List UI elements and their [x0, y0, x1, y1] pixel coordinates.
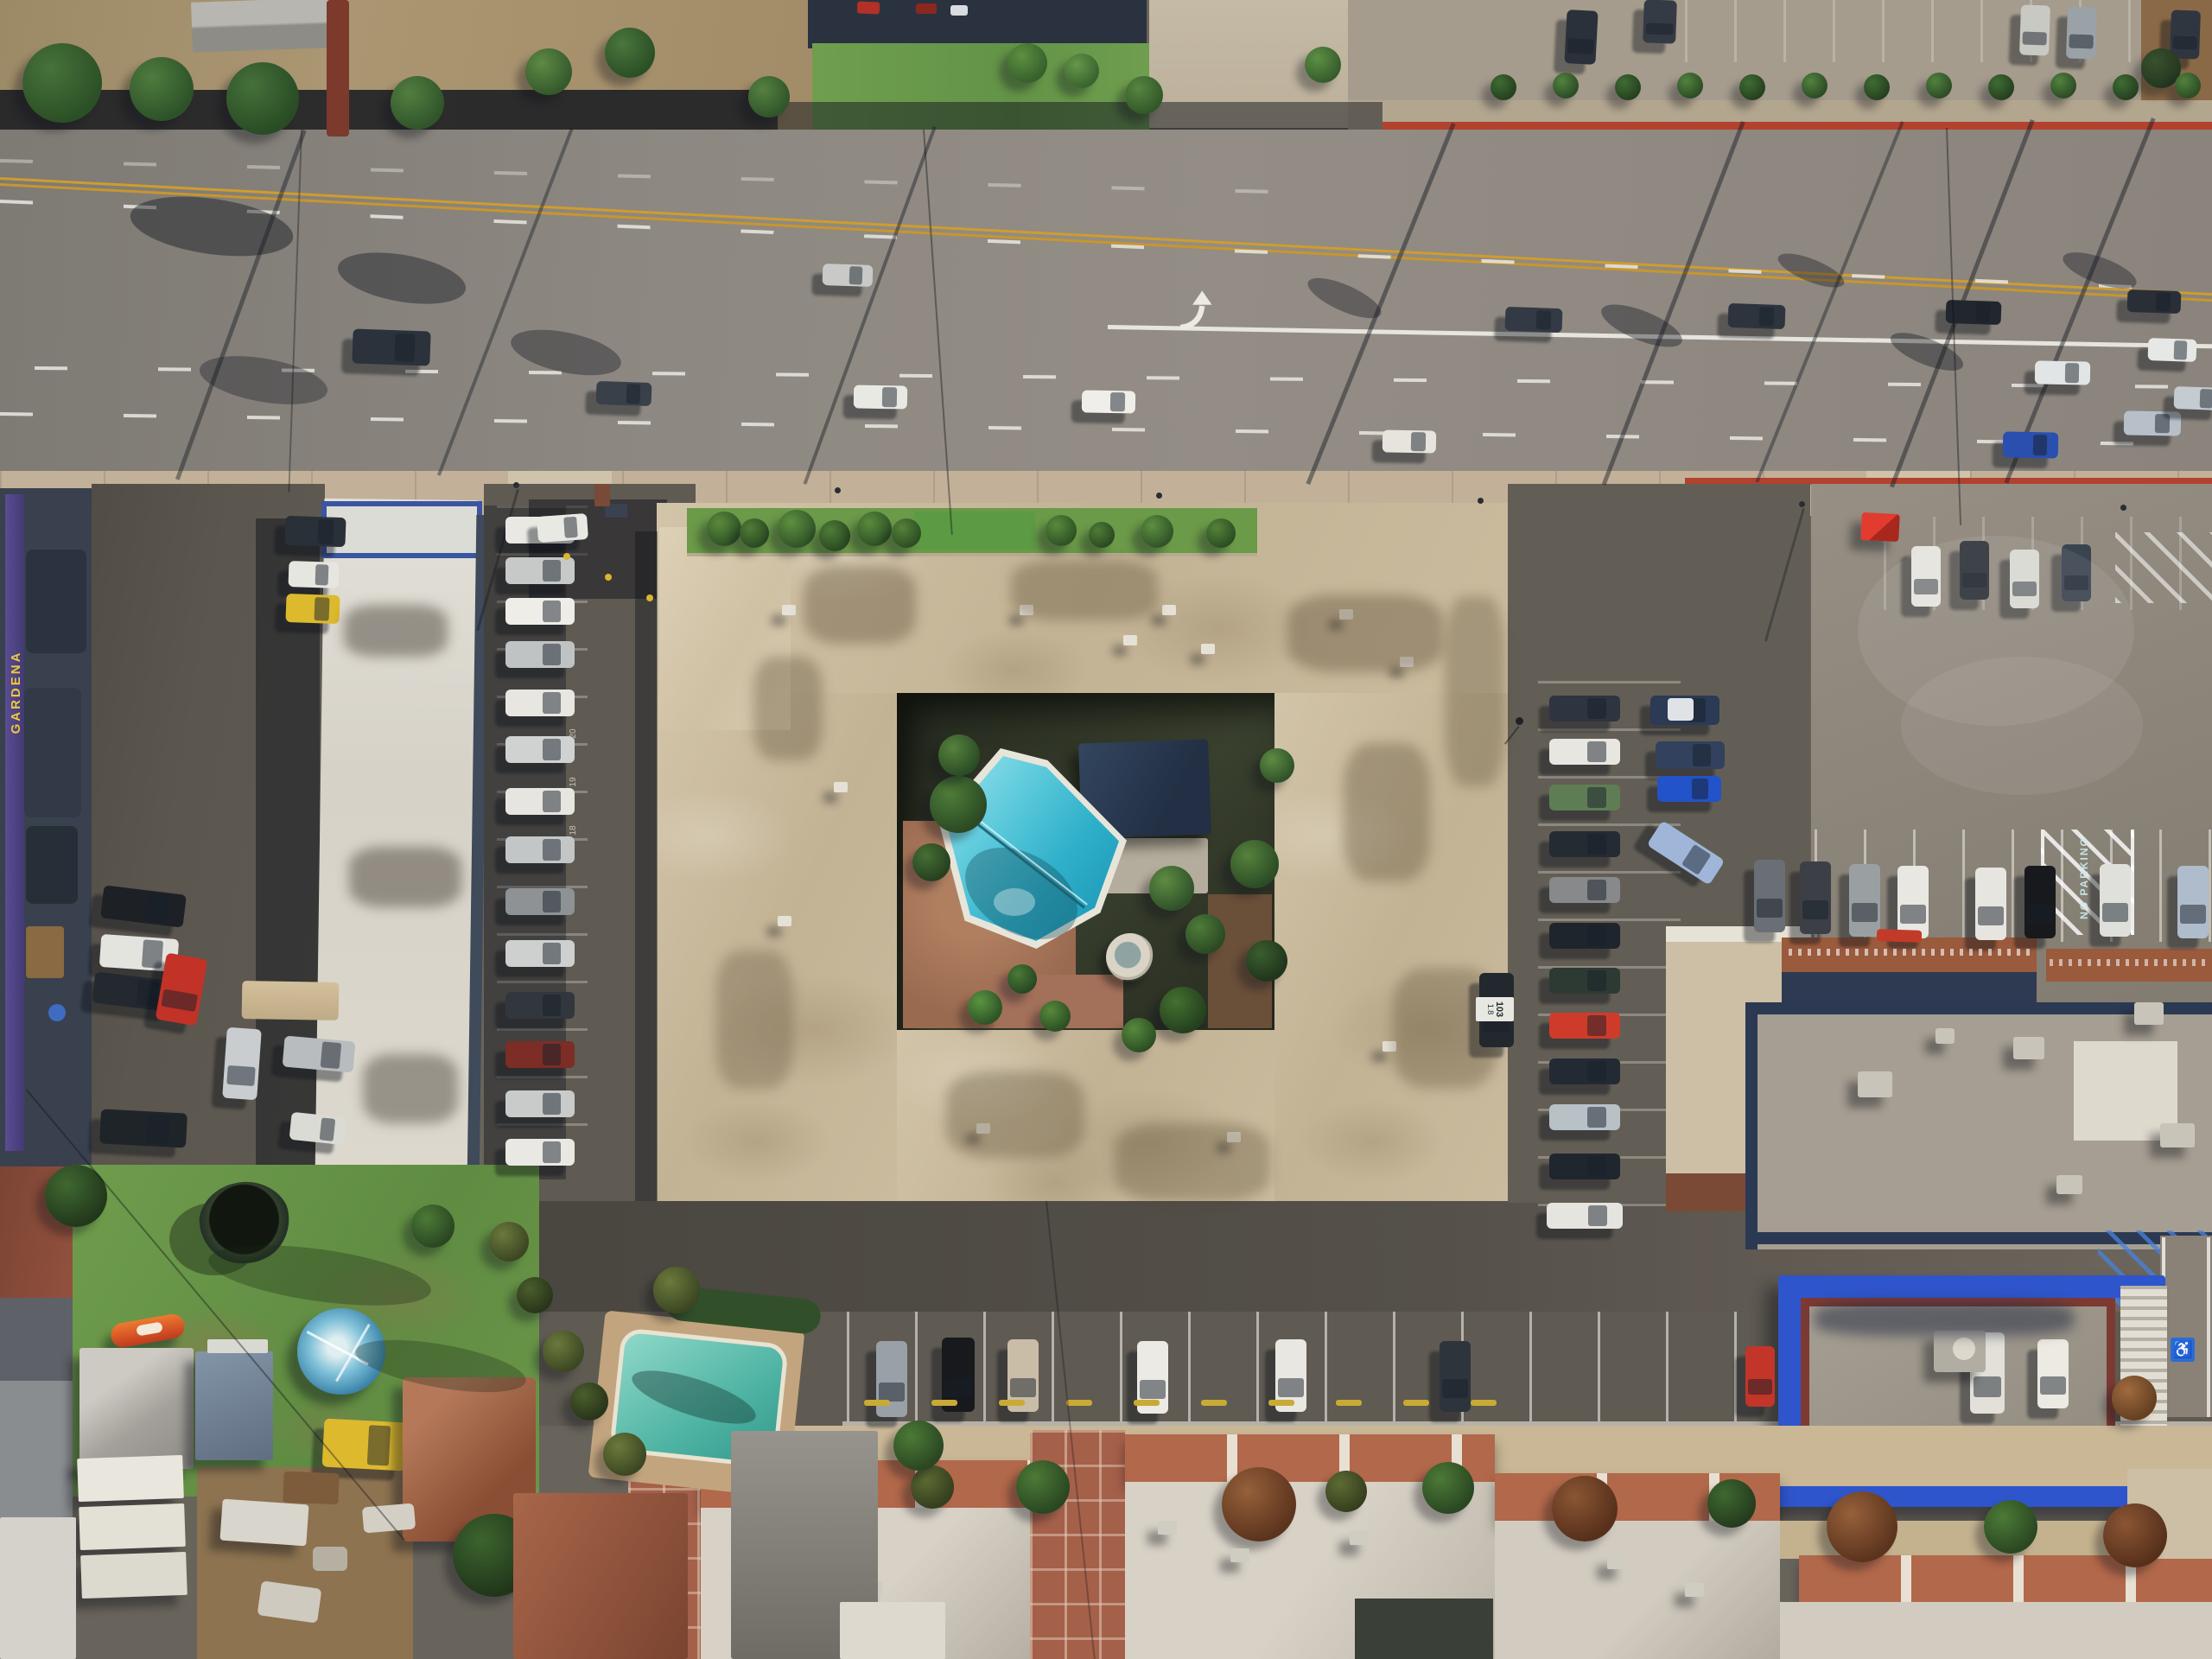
hedge-diag: [603, 1433, 646, 1476]
parked-car: [288, 561, 339, 588]
parked-car: [1549, 831, 1620, 857]
tree: [130, 57, 194, 121]
hedge: [1677, 73, 1703, 99]
blue-barrel: [48, 1004, 66, 1021]
street-tree-rust: [1827, 1491, 1897, 1562]
roof-garden-tree: [857, 512, 892, 546]
parked-car: [2024, 866, 2056, 938]
parked-car: [2066, 6, 2097, 59]
parked-car: [505, 992, 575, 1019]
parked-car: [100, 885, 187, 927]
parking-bumper: [999, 1400, 1025, 1406]
parking-bumper: [1066, 1400, 1092, 1406]
strip-roof-ac: [1230, 1548, 1249, 1562]
hedge: [1926, 73, 1952, 99]
road-car: [823, 264, 874, 287]
hvac-unit: [782, 605, 796, 615]
palm-tree: [1305, 47, 1341, 83]
bollard: [646, 594, 653, 601]
parked-car: [505, 690, 575, 716]
road-car: [1505, 307, 1563, 333]
hedge-diag: [517, 1277, 553, 1313]
hvac-unit: [1201, 644, 1215, 654]
tree-shadow: [126, 188, 296, 265]
street-tree-rust: [2103, 1503, 2167, 1567]
white-roof-cab: [1668, 698, 1694, 721]
power-line: [1946, 128, 1961, 525]
roof-garden-tree: [707, 512, 741, 546]
roof-stain: [1445, 596, 1505, 786]
pedestr-shadow: [1504, 726, 1520, 745]
hedge: [1491, 74, 1516, 100]
parking-bumper: [931, 1400, 957, 1406]
parked-car: [1549, 877, 1620, 903]
street-tree-rust: [1222, 1467, 1296, 1541]
courtyard-palm: [1185, 914, 1225, 954]
parked-car: [289, 1112, 347, 1146]
hvac-unit: [1162, 605, 1176, 615]
roof-stain: [715, 950, 793, 1089]
street-tree-olive: [911, 1465, 954, 1509]
red-cover: [1877, 929, 1922, 943]
roof-stain: [1115, 1123, 1270, 1201]
power-line: [923, 130, 953, 535]
tree: [226, 62, 299, 135]
parked-car: [505, 598, 575, 625]
palm-tree: [1065, 54, 1099, 88]
sign-speckle: [2050, 959, 2207, 966]
yard-clutter: [313, 1547, 347, 1571]
roof-garden-tree: [1141, 515, 1173, 548]
parked-car: [1754, 860, 1785, 932]
blue-roof-shade: [1815, 1301, 2074, 1336]
wood-crate: [26, 926, 64, 978]
tree-shadow: [507, 321, 626, 384]
roof-stain: [753, 657, 823, 760]
rooftop-ac: [2134, 1002, 2164, 1025]
yard-truck: [24, 688, 81, 817]
courtyard-shrub: [1246, 940, 1287, 982]
roof-garden-tree: [740, 518, 769, 548]
blue-roof-hvac-fan: [1953, 1338, 1975, 1360]
road-car: [2127, 289, 2182, 314]
parked-car: [1656, 741, 1725, 769]
res-roof-white: [840, 1602, 945, 1659]
pedestrian: [1516, 717, 1523, 725]
hedge: [1615, 74, 1641, 100]
parking-bumper: [1134, 1400, 1160, 1406]
strip-roof-ac: [1685, 1583, 1704, 1597]
parked-car: [99, 1109, 188, 1147]
road-car: [352, 328, 430, 365]
yellow-pickup: [322, 1419, 408, 1471]
parked-car: [1549, 1104, 1620, 1130]
courtyard-shrub: [1007, 964, 1037, 994]
rooftop-ac: [2013, 1037, 2044, 1059]
white-car-rooftop: [950, 5, 968, 16]
roof-garden-tree: [892, 518, 921, 548]
parked-car: [2170, 10, 2201, 59]
hvac-unit: [1123, 635, 1137, 645]
parked-car: [1564, 10, 1598, 65]
box-truck: [242, 981, 340, 1020]
hedge: [1988, 74, 2014, 100]
parked-car: [1549, 696, 1620, 721]
red-car-rooftop: [916, 3, 937, 14]
street-tree-rust: [1552, 1476, 1618, 1541]
awning-step: [77, 1455, 184, 1502]
parking-bumper: [864, 1400, 890, 1406]
streetlight-base: [1799, 501, 1805, 507]
palm-tree: [1125, 76, 1163, 114]
courtyard-shrub: [968, 990, 1002, 1025]
car-roof-sign-number: 103: [1494, 1001, 1503, 1017]
parked-car: [505, 940, 575, 967]
parked-car: [1549, 1058, 1620, 1084]
courtyard-palm: [938, 734, 980, 776]
strip-roof-ac: [1350, 1531, 1369, 1545]
angled-sedan: [1647, 820, 1726, 885]
yard-truck: [26, 550, 86, 653]
courtyard-palm: [1260, 748, 1294, 783]
parked-car: [2037, 1339, 2069, 1408]
tree: [525, 48, 572, 95]
pole-shadow: [804, 126, 937, 485]
courtyard-palm: [1149, 866, 1194, 911]
streetlight-base: [835, 487, 841, 493]
roof-stain: [1287, 594, 1443, 672]
parking-bumper: [1403, 1400, 1429, 1406]
roof-garden-tree: [819, 520, 850, 551]
courtyard-shrub: [1122, 1018, 1156, 1052]
parked-car: [1975, 868, 2006, 940]
roof-stain: [1344, 743, 1430, 881]
road-car: [1082, 390, 1135, 413]
awning-step: [79, 1503, 186, 1550]
parked-car: [1440, 1341, 1471, 1412]
parked-car: [1800, 861, 1831, 934]
red-canopy-tent: [1860, 512, 1900, 542]
parked-car: [505, 1090, 575, 1117]
hedge-diag: [570, 1382, 608, 1421]
parked-car: [222, 1027, 262, 1101]
power-line: [1046, 1201, 1096, 1659]
roof-stain: [946, 1071, 1084, 1158]
rooftop-ac: [1935, 1028, 1955, 1044]
roof-stain: [804, 566, 916, 644]
res-roof-terracotta: [513, 1493, 688, 1659]
pole-shadow: [1764, 508, 1805, 642]
palm-tree: [1007, 43, 1047, 83]
yard-tree-olive: [653, 1267, 700, 1313]
hedge: [1802, 73, 1827, 99]
street-tree-olive: [1325, 1471, 1367, 1512]
parked-car: [1549, 968, 1620, 994]
road-car: [2148, 338, 2197, 362]
tree-shadow: [196, 347, 331, 412]
parked-car: [505, 788, 575, 815]
sprite-layer: [0, 0, 2212, 1659]
roof-garden-tree: [1206, 518, 1236, 548]
truck-bed: [219, 1499, 308, 1547]
hedge: [1553, 73, 1579, 99]
road-car: [2174, 386, 2212, 410]
hedge: [1739, 74, 1765, 100]
parked-car: [1849, 864, 1880, 937]
parking-bumper: [1201, 1400, 1227, 1406]
streetlight-base: [513, 482, 519, 488]
wood-pile: [283, 1471, 339, 1504]
streetlight-base: [1156, 493, 1162, 499]
pole-shadow: [1755, 121, 1904, 483]
tree: [391, 76, 444, 130]
parked-car: [1643, 0, 1677, 44]
bollard: [605, 574, 612, 581]
parked-car: [505, 1041, 575, 1068]
parking-bumper: [1268, 1400, 1294, 1406]
palm-shadow: [1774, 247, 1848, 295]
roof-garden-tree: [1089, 522, 1115, 548]
hedge: [1864, 74, 1890, 100]
pole-shadow: [437, 128, 574, 476]
signboard: [594, 484, 610, 506]
tree: [605, 28, 655, 78]
hedge: [2050, 73, 2076, 99]
red-car: [1745, 1346, 1775, 1407]
courtyard-shrub: [1160, 987, 1206, 1033]
roof-garden-tree: [778, 510, 816, 548]
tree-shadow: [334, 244, 469, 312]
dead-bush: [2112, 1376, 2157, 1421]
power-line: [288, 130, 302, 493]
parked-car: [505, 888, 575, 915]
parked-car: [1549, 739, 1620, 765]
yard-tree: [411, 1205, 454, 1248]
red-tower-roof: [327, 0, 349, 137]
parking-bumper: [1471, 1400, 1497, 1406]
aerial-photo-scene: GARDENA 20 19 18: [0, 0, 2212, 1659]
hedge: [2113, 74, 2139, 100]
car-roof-sign-sub: 1.8: [1486, 1004, 1494, 1015]
road-car: [596, 381, 652, 406]
car-roof-sign: 103 1.8: [1476, 997, 1514, 1021]
road-car: [2035, 360, 2090, 385]
road-car: [854, 385, 907, 409]
parked-car: [1549, 1154, 1620, 1179]
strip-roof-ac: [1158, 1521, 1177, 1535]
palm-shadow: [1303, 270, 1386, 327]
rooftop-ac: [1858, 1071, 1892, 1097]
parked-car: [505, 1139, 575, 1166]
white-garage: [0, 1517, 76, 1659]
roof-smudge: [349, 847, 461, 907]
roof-smudge: [363, 1054, 458, 1123]
rooftop-ac: [2160, 1123, 2195, 1147]
yard-tree: [893, 1421, 944, 1471]
parked-car: [283, 1035, 356, 1072]
tree: [748, 76, 790, 118]
hvac-unit: [834, 782, 848, 792]
hedge: [2175, 73, 2201, 99]
pole-shadow: [1602, 121, 1745, 486]
hedge-diag: [543, 1331, 584, 1372]
lot-sun-wash: [1901, 657, 2143, 795]
yard-clutter: [257, 1580, 322, 1623]
road-car: [1382, 429, 1436, 453]
streetlight-base: [2120, 505, 2126, 511]
road-car: [1728, 303, 1786, 329]
grass-shadow: [205, 1234, 435, 1317]
red-car-rooftop: [857, 2, 880, 15]
yard-equipment: [26, 826, 78, 904]
courtyard-palm: [912, 843, 950, 881]
parked-car: [505, 641, 575, 668]
streetlight-base: [1478, 498, 1484, 504]
courtyard-palm: [930, 776, 987, 833]
courtyard-palm: [1230, 840, 1279, 888]
parked-car: [284, 516, 346, 547]
street-tree: [1984, 1500, 2037, 1554]
sign-speckle: [1789, 949, 2031, 956]
tree: [22, 43, 102, 123]
parked-car: [505, 557, 575, 584]
street-tree: [1422, 1462, 1474, 1514]
pool-steps: [994, 888, 1035, 916]
carport-suv: [537, 513, 588, 543]
parked-car: [2019, 4, 2050, 55]
strip-roof-ac: [1607, 1555, 1626, 1569]
roof-smudge: [344, 605, 448, 657]
hedge-diag: [489, 1222, 529, 1262]
parked-car: [505, 836, 575, 863]
parked-car: [1897, 866, 1929, 938]
street-tree: [1707, 1479, 1756, 1528]
bollard: [563, 553, 570, 560]
parked-car: [2100, 864, 2131, 937]
gray-shed-roof: [79, 1348, 194, 1469]
street-tree: [1016, 1460, 1070, 1514]
yellow-car: [285, 594, 340, 624]
roof-garden-tree: [1046, 515, 1077, 546]
parked-car: [2177, 866, 2209, 938]
road-car: [2124, 410, 2181, 435]
courtyard-shrub: [1039, 1001, 1071, 1032]
rooftop-ac: [2056, 1175, 2082, 1194]
road-car-blue-jeep: [2003, 431, 2059, 458]
blue-car: [1657, 776, 1721, 802]
red-coupe: [1549, 1013, 1620, 1039]
white-pickup: [1547, 1203, 1623, 1229]
pole-shadow: [175, 130, 307, 480]
parking-bumper: [1336, 1400, 1362, 1406]
parked-car: [505, 736, 575, 763]
yard-clutter: [362, 1503, 416, 1533]
parked-car: [1549, 923, 1620, 949]
roof-stain: [1011, 560, 1158, 620]
hvac-unit: [778, 916, 791, 926]
green-truck: [1549, 785, 1620, 810]
awning-step: [80, 1552, 188, 1599]
